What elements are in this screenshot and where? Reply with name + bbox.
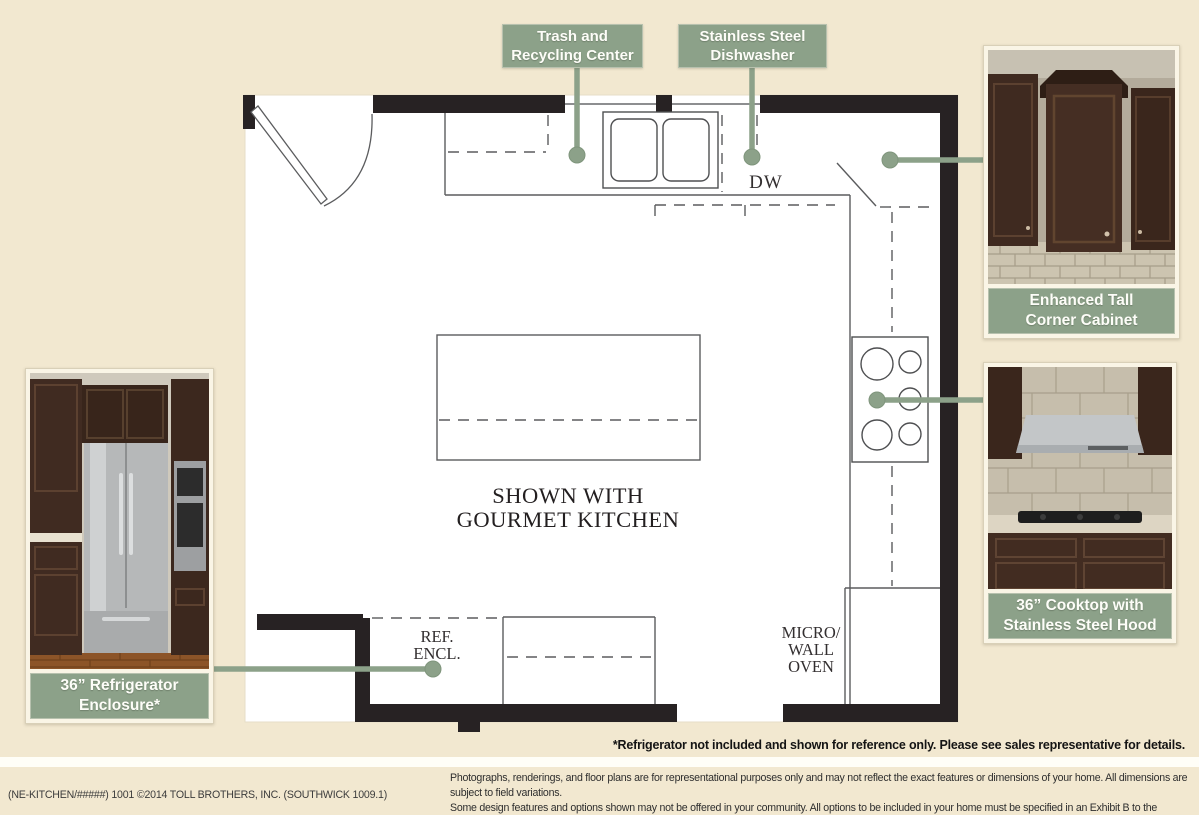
micro-wall-oven-line3: OVEN [788, 657, 834, 676]
trash-recycling-label-line1: Trash and [509, 27, 636, 46]
corner-cabinet-photo: Enhanced Tall Corner Cabinet [983, 45, 1180, 339]
corner-cabinet-photo-illustration [988, 50, 1175, 284]
trash-recycling-label-line2: Recycling Center [509, 46, 636, 65]
disclaimer-line2: Some design features and options shown m… [450, 801, 1195, 815]
cooktop-label-line2: Stainless Steel Hood [993, 616, 1167, 636]
corner-cabinet-label-line1: Enhanced Tall [993, 291, 1170, 311]
copyright-line: (NE-KITCHEN/#####) 1001 ©2014 TOLL BROTH… [8, 789, 387, 801]
dishwasher-label-line1: Stainless Steel [685, 27, 820, 46]
divider-strip [0, 757, 1199, 767]
dw-label: DW [749, 172, 783, 193]
sink [603, 112, 718, 188]
refrigerator-footnote: *Refrigerator not included and shown for… [285, 738, 1185, 752]
cooktop-hood-photo: 36” Cooktop with Stainless Steel Hood [983, 362, 1177, 644]
legal-disclaimer: Photographs, renderings, and floor plans… [450, 771, 1195, 815]
cooktop-label-line1: 36” Cooktop with [993, 596, 1167, 616]
corner-cabinet-photo-label: Enhanced Tall Corner Cabinet [988, 288, 1175, 334]
cooktop-hood-photo-label: 36” Cooktop with Stainless Steel Hood [988, 593, 1172, 639]
island [437, 335, 700, 460]
cooktop-hood-photo-illustration [988, 367, 1172, 589]
disclaimer-line1: Photographs, renderings, and floor plans… [450, 771, 1195, 801]
dishwasher-label: Stainless Steel Dishwasher [678, 24, 827, 68]
shown-with-line1: SHOWN WITH [492, 483, 643, 508]
refrigerator-photo-label: 36” Refrigerator Enclosure* [30, 673, 209, 719]
refrigerator-photo-illustration [30, 373, 209, 669]
refrigerator-label-line2: Enclosure* [35, 696, 204, 716]
kitchen-floorplan-sheet: DW SHOWN WITH GOURMET KITCHEN REF. ENCL.… [0, 0, 1199, 815]
refrigerator-label-line1: 36” Refrigerator [35, 676, 204, 696]
ref-encl-line2: ENCL. [413, 644, 460, 663]
shown-with-line2: GOURMET KITCHEN [457, 507, 680, 532]
corner-cabinet-label-line2: Corner Cabinet [993, 311, 1170, 331]
refrigerator-photo: 36” Refrigerator Enclosure* [25, 368, 214, 724]
trash-recycling-label: Trash and Recycling Center [502, 24, 643, 68]
dishwasher-label-line2: Dishwasher [685, 46, 820, 65]
